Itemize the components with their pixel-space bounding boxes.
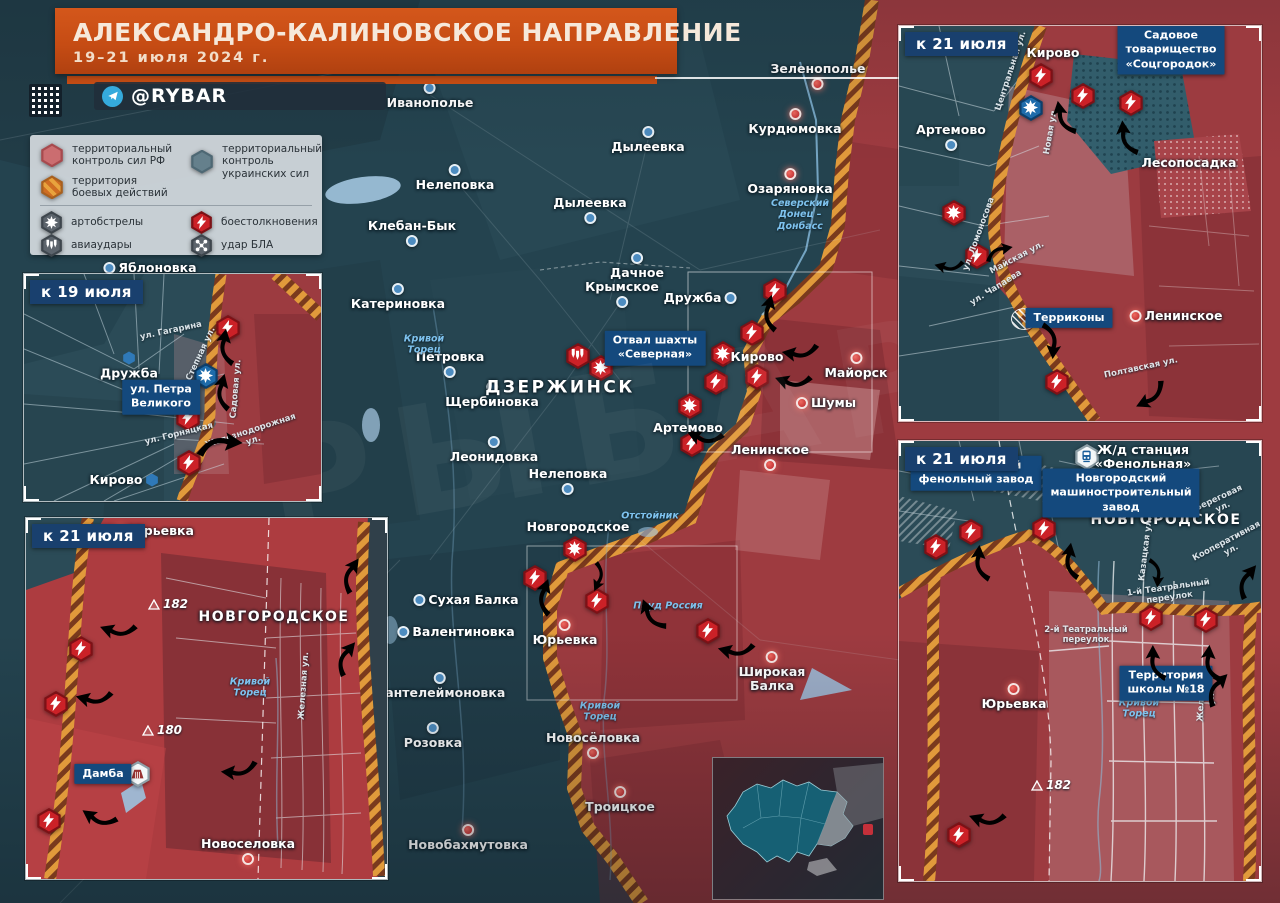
height-marker: 180 [142,723,182,737]
ua-town-marker [427,722,439,734]
place-label: Кирово [730,350,783,364]
legend-item-combat-zone: территория боевых действий [40,175,168,200]
icon-bolt [36,808,62,834]
area-label-box: Садовое товарищество «Соцгородок» [1118,26,1225,75]
place-label: Дачное [610,266,664,280]
qr-code [29,84,62,117]
place-label: Новосёловка [546,731,640,745]
attack-arrow-red [771,363,815,399]
ua-town-marker [444,366,456,378]
attack-arrow-red [715,633,758,666]
place: Леонидовка [450,436,538,464]
water-label: Кривой Торец [404,334,444,357]
inset-date-label: к 21 июля [905,32,1018,56]
attack-arrow-blue [1145,557,1167,589]
place-label: Новоселовка [201,837,295,851]
ru-town-marker [242,853,254,865]
place: Нелеповка [416,164,495,192]
icon-bolt [1028,63,1054,89]
place: Валентиновка [397,625,514,639]
place-label: Юрьевка [533,633,598,647]
place-label: Кирово [89,473,142,487]
place-label: Курдюмовка [748,122,841,136]
clashes-icon [190,211,213,234]
map-date: 19–21 июля 2024 г. [73,50,659,66]
attack-arrow-blue [932,253,966,279]
icon-bolt [946,822,972,848]
icon-bolt [1031,516,1057,542]
place-label: Новгородское [527,520,630,534]
place-label: Катериновка [351,297,445,311]
water-label: Кривой Торец [1119,698,1159,721]
ua-town-marker [724,292,736,304]
ua-town-marker [449,164,461,176]
ru-town-marker [559,619,571,631]
place: Розовка [404,722,462,750]
place: Юрьевка [982,683,1047,711]
place-label: ДЗЕРЖИНСК [485,378,634,397]
place: НОВГОРОДСКОЕ [199,610,350,626]
region-marker [863,824,873,835]
inset-panel-july19: к 19 июля ДружбаКировоул. Петра Великого… [23,273,322,502]
ru-town-marker [784,168,796,180]
ua-town-marker [392,283,404,295]
legend: территориальный контроль сил РФ территор… [30,135,322,255]
legend-item-rf-control: территориальный контроль сил РФ [40,143,172,168]
place-label: Майорск [824,366,887,380]
place-label: Леонидовка [450,450,538,464]
place-label: Озаряновка [747,182,832,196]
place-label: Крымское [585,280,659,294]
place-label: Зеленополье [771,62,866,76]
attack-arrow-red [73,681,116,714]
icon-bolt [744,364,770,390]
channel-name: @RYBAR [131,85,227,107]
icon-bolt [68,636,94,662]
place: Юрьевка [533,619,598,647]
street-label: ул. Гагарина [139,319,203,342]
place-label: Троицкое [585,800,655,814]
ua-town-marker [146,474,159,487]
attack-arrow-red [753,292,786,335]
ua-control-swatch [190,150,214,174]
street-label: 1-й Театральный переулок [1126,577,1212,609]
place: Ж/д станция «Фенольная» [1095,443,1191,471]
ua-town-marker [434,672,446,684]
place-label: НОВГОРОДСКОЕ [199,610,350,626]
map-title: АЛЕКСАНДРО-КАЛИНОВСКОЕ НАПРАВЛЕНИЕ [73,18,659,47]
icon-bolt [703,369,729,395]
place: Артемово [916,123,986,151]
height-marker: 182 [1031,778,1071,792]
attack-arrow-red [1129,377,1174,415]
place: Ленинское [731,443,809,471]
attack-arrow-red [325,636,368,681]
place-label: Дружба [664,291,722,305]
street-label: Железная ул. [297,652,312,721]
place: ДЗЕРЖИНСК [485,378,634,397]
place: Пантелеймоновка [375,672,506,700]
war-map-infographic: РЫБАРЬ ИванопольеЗеленопольеКурдюмовкаДы… [0,0,1280,903]
attack-arrow-red [1226,559,1262,604]
place-label: Нелеповка [416,178,495,192]
ua-town-marker [123,352,136,365]
place: Клебан-Бык [368,219,456,247]
attack-arrow-red [330,553,371,598]
place-label: Дружба [100,367,158,381]
place: Дружба [100,352,158,381]
icon-bolt [1044,369,1070,395]
icon-burst [562,536,588,562]
legend-item-ua-control: территориальный контроль украинских сил [190,143,322,180]
area-label-box: Новгородский машиностроительный завод [1042,469,1199,518]
icon-burst [677,393,703,419]
ua-town-marker [406,235,418,247]
water-label: Северский Донец – Донбасс [771,198,829,232]
ua-town-marker [631,252,643,264]
area-label-box: Терриконы [1026,308,1113,328]
legend-item-airstrikes: авиаудары [40,234,132,257]
ru-town-marker [789,108,801,120]
place-label: Широкая Балка [739,665,806,693]
inset-panel-july21-e: к 21 июля НОВГОРОДСКОЕЖ/д станция «Фенол… [898,440,1262,882]
place-label: Новобахмутовка [408,838,528,852]
ru-town-marker [812,78,824,90]
ua-town-marker [397,626,409,638]
place-label: Нелеповка [529,467,608,481]
icon-bolt [1138,605,1164,631]
attack-arrow-red [1144,644,1168,682]
inset-date-label: к 21 июля [905,447,1018,471]
attack-arrow-red [967,543,994,583]
place: Новоселовка [201,837,295,865]
attack-arrow-red [779,337,821,367]
inset-panel-july21-sw: к 21 июля ЮрьевкаНОВГОРОДСКОЕНовоселовка… [25,517,388,880]
icon-bolt [1193,607,1219,633]
street-label: Полтавская ул. [1103,355,1179,381]
place-label: Иванополье [387,96,474,110]
place: Кирово [89,473,158,487]
decorative-line [655,77,935,79]
street-label: 2-й Театральный переулок [1044,625,1128,645]
icon-bolt [695,618,721,644]
place: Троицкое [585,786,655,814]
place-label: Юрьевка [982,697,1047,711]
attack-arrow-red [1037,321,1064,361]
ru-town-marker [587,747,599,759]
title-banner: АЛЕКСАНДРО-КАЛИНОВСКОЕ НАПРАВЛЕНИЕ 19–21… [55,8,677,74]
area-label-box: Дамба [74,764,131,784]
place: Дачное [610,252,664,280]
place-label: Ленинское [731,443,809,457]
ru-town-marker [764,459,776,471]
place-label: Сухая Балка [428,593,518,607]
icon-burst [1018,95,1044,121]
height-marker: 182 [148,597,188,611]
place-label: Дылеевка [553,196,626,210]
attack-arrow-red [1056,540,1086,582]
place: Сухая Балка [413,593,518,607]
water-label: Отстойник [621,510,679,521]
ua-town-marker [945,139,957,151]
airstrike-icon [40,234,63,257]
inset-date-label: к 21 июля [32,524,145,548]
place: Озаряновка [747,168,832,196]
attack-arrow-red [77,797,122,838]
place-label: Дылеевка [611,140,684,154]
place-label: Лесопосадка [1142,156,1237,170]
icon-bolt [1118,90,1144,116]
place-label: Шумы [811,396,856,410]
telegram-badge: @RYBAR [94,82,386,110]
place: Лесопосадка [1142,156,1237,170]
area-label-box: ул. Петра Великого [122,380,200,415]
attack-arrow-red [195,428,245,462]
ru-town-marker [614,786,626,798]
place-label: Ленинское [1145,309,1223,323]
place: Кирово [730,350,783,364]
area-label-box: Отвал шахты «Северная» [605,331,706,366]
ua-town-marker [488,436,500,448]
ru-town-marker [766,651,778,663]
place-label: Клебан-Бык [368,219,456,233]
place: Катериновка [351,283,445,311]
place: Майорск [824,352,887,380]
place: Новобахмутовка [408,824,528,852]
water-label: Кривой Торец [230,677,270,700]
legend-separator [40,205,312,206]
place: Ленинское [1130,309,1223,323]
ru-town-marker [462,824,474,836]
attack-arrow-red [96,612,140,648]
place-label: Валентиновка [412,625,514,639]
ua-town-marker [562,483,574,495]
ru-town-marker [1008,683,1020,695]
place: Иванополье [387,82,474,110]
inset-date-label: к 19 июля [30,280,143,304]
icon-bolt [958,519,984,545]
place-label: Пантелеймоновка [375,686,506,700]
ru-town-marker [850,352,862,364]
place: Нелеповка [529,467,608,495]
artillery-icon [40,211,63,234]
uav-icon [190,234,213,257]
ukraine-minimap [712,757,884,900]
inset-panel-july21-ne: к 21 июля КировоАртемовоЛесопосадкаЛенин… [898,25,1262,422]
legend-item-artillery: артобстрелы [40,211,143,234]
ua-town-marker [413,594,425,606]
place-label: Ж/д станция «Фенольная» [1095,443,1191,471]
legend-item-uav: удар БЛА [190,234,273,257]
place: Новгородское [527,520,630,534]
icon-bolt [923,534,949,560]
place: Дылеевка [553,196,626,224]
icon-bolt [43,691,69,717]
ua-town-marker [584,212,596,224]
water-label: Кривой Торец [580,701,620,724]
rf-control-swatch [40,143,64,167]
attack-arrow-red [1113,118,1140,158]
place-label: Кирово [1026,46,1079,60]
place: Новосёловка [546,731,640,759]
icon-burst [941,200,967,226]
legend-item-clashes: боестолкновения [190,211,318,234]
place: Кирово [1026,46,1079,60]
place: Дружба [664,291,737,305]
ru-town-marker [1130,310,1142,322]
telegram-icon [102,86,123,107]
place: Дылеевка [611,126,684,154]
combat-zone-swatch [40,175,64,199]
attack-arrow-red [219,756,259,783]
place: Курдюмовка [748,108,841,136]
ua-town-marker [642,126,654,138]
place-label: Розовка [404,736,462,750]
place: Зеленополье [771,62,866,90]
place: Крымское [585,280,659,308]
place-label: Артемово [916,123,986,137]
ua-town-marker [616,296,628,308]
